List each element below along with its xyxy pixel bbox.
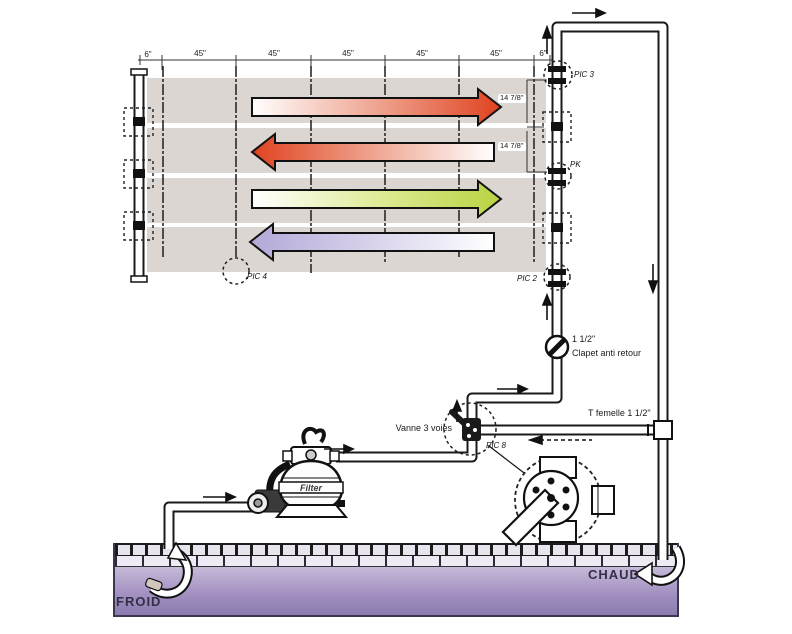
- solar-heating-diagram: 6" 45" 45" 45" 45" 45" 6" 14 7/8" 14 7/8…: [0, 0, 792, 634]
- dim-panel-height-2: 14 7/8": [498, 142, 526, 151]
- label-hot-water: CHAUD: [588, 568, 640, 583]
- dim-45in: 45": [411, 49, 433, 58]
- dim-45in: 45": [337, 49, 359, 58]
- label-tee-fitting: T femelle 1 1/2": [588, 408, 651, 418]
- label-pic4: PIC 4: [247, 272, 267, 281]
- label-pic3: PIC 3: [574, 70, 594, 79]
- dim-6in-left: 6": [141, 50, 155, 59]
- dim-45in: 45": [485, 49, 507, 58]
- dim-6in-right: 6": [536, 49, 550, 58]
- label-pic2: PIC 2: [517, 274, 537, 283]
- label-filter: Filter: [290, 483, 332, 493]
- labels: 6" 45" 45" 45" 45" 45" 6" 14 7/8" 14 7/8…: [0, 0, 792, 634]
- label-pic8: PIC 8: [486, 441, 506, 450]
- label-three-way-valve: Vanne 3 voies: [382, 423, 452, 433]
- label-cold-water: FROID: [116, 595, 161, 610]
- dim-45in: 45": [189, 49, 211, 58]
- dim-45in: 45": [263, 49, 285, 58]
- label-check-valve: Clapet anti retour: [572, 348, 641, 358]
- dim-panel-height-1: 14 7/8": [498, 94, 526, 103]
- label-check-valve-size: 1 1/2": [572, 334, 595, 344]
- label-pk: PK: [570, 160, 581, 169]
